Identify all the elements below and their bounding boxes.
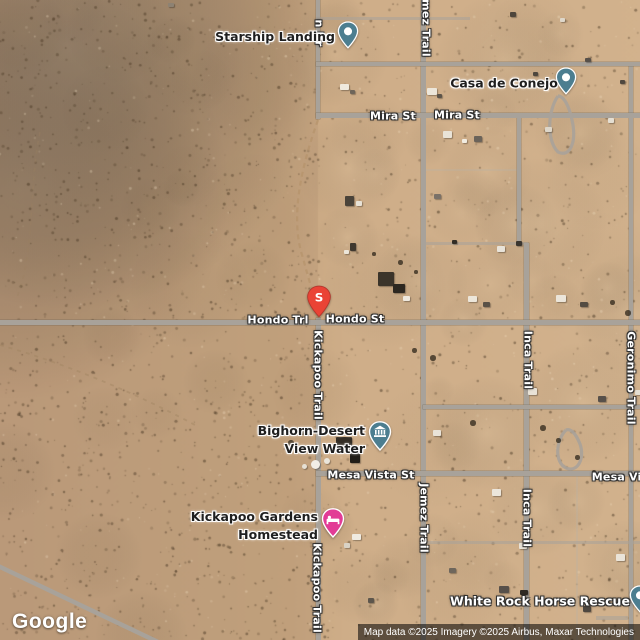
tree bbox=[625, 310, 631, 316]
building bbox=[585, 58, 591, 62]
road-label-mira-st-1: Mira St bbox=[370, 110, 416, 123]
road-label-hondo-st: Hondo St bbox=[326, 313, 385, 326]
road-label-kickapoo-trail-1: Kickapoo Trail bbox=[312, 330, 325, 420]
road-label-jemez-trail: Jemez Trail bbox=[418, 483, 431, 553]
tree bbox=[575, 455, 580, 460]
casa-de-conejo-pin[interactable] bbox=[555, 67, 577, 95]
building bbox=[462, 139, 467, 143]
building bbox=[434, 194, 441, 199]
tree bbox=[610, 300, 615, 305]
building bbox=[499, 586, 509, 593]
tree bbox=[470, 420, 476, 426]
marker-letter: S bbox=[315, 290, 324, 304]
building bbox=[433, 430, 441, 436]
building bbox=[344, 543, 350, 548]
building bbox=[468, 296, 477, 302]
selected-place-marker[interactable]: S bbox=[306, 285, 332, 318]
tree bbox=[556, 438, 561, 443]
map-viewport[interactable]: Mira St Mira St Hondo Trl Hondo St Mesa … bbox=[0, 0, 640, 640]
poi-label-line2: View Water bbox=[258, 440, 365, 458]
road-label-mez-trail: mez Trail bbox=[420, 0, 433, 57]
pin-dot-icon bbox=[562, 73, 570, 81]
building bbox=[598, 396, 606, 402]
building bbox=[350, 90, 355, 94]
building bbox=[616, 554, 625, 561]
road-label-hondo-trl: Hondo Trl bbox=[247, 314, 308, 327]
building bbox=[368, 598, 374, 603]
pin-dot-icon bbox=[344, 27, 352, 35]
tree bbox=[540, 425, 546, 431]
building bbox=[560, 18, 565, 22]
building bbox=[302, 464, 307, 469]
poi-label-line1: Bighorn-Desert bbox=[258, 422, 365, 440]
building bbox=[510, 12, 516, 17]
building bbox=[352, 534, 361, 540]
starship-landing-pin[interactable] bbox=[337, 21, 359, 49]
building bbox=[497, 246, 505, 252]
attribution-text: Map data ©2025 Imagery ©2025 Airbus, Max… bbox=[364, 627, 634, 638]
building bbox=[393, 284, 405, 293]
poi-label-bighorn-desert-view-water[interactable]: Bighorn-Desert View Water bbox=[258, 422, 365, 458]
kickapoo-gardens-pin[interactable] bbox=[321, 508, 345, 538]
building bbox=[324, 458, 330, 464]
white-rock-pin[interactable] bbox=[629, 585, 640, 613]
road-label-kickapoo-trail-2: Kickapoo Trail bbox=[311, 543, 324, 633]
building bbox=[545, 127, 552, 132]
building bbox=[378, 272, 394, 286]
dirt-trail bbox=[0, 345, 195, 425]
building bbox=[340, 84, 349, 90]
tree bbox=[372, 252, 376, 256]
building bbox=[452, 240, 457, 244]
building bbox=[350, 243, 356, 251]
driveway-loop bbox=[550, 96, 574, 153]
google-logo[interactable]: Google bbox=[12, 610, 87, 634]
road-label-inca-trail-1: Inca Trail bbox=[522, 331, 535, 389]
dirt-trail bbox=[16, 132, 40, 300]
poi-label-starship-landing[interactable]: Starship Landing bbox=[215, 29, 335, 44]
road-label-geronimo-trail: Geronimo Trail bbox=[625, 331, 638, 424]
building bbox=[345, 196, 354, 206]
building bbox=[492, 489, 501, 496]
building bbox=[427, 88, 437, 95]
building bbox=[403, 296, 410, 301]
poi-label-kickapoo-gardens-homestead[interactable]: Kickapoo Gardens Homestead bbox=[191, 508, 318, 544]
tree bbox=[414, 270, 418, 274]
building bbox=[474, 136, 482, 142]
building bbox=[620, 80, 625, 84]
tree bbox=[412, 348, 417, 353]
attribution-bar[interactable]: Map data ©2025 Imagery ©2025 Airbus, Max… bbox=[358, 624, 640, 640]
road-label-mesa-vis: Mesa Vis bbox=[592, 471, 640, 484]
driveway-loop bbox=[558, 430, 582, 469]
building bbox=[344, 250, 349, 254]
building bbox=[483, 302, 490, 307]
tree bbox=[398, 260, 403, 265]
building bbox=[356, 201, 362, 206]
poi-label-white-rock-horse-rescue[interactable]: White Rock Horse Rescue bbox=[450, 594, 630, 609]
poi-label-line1: Kickapoo Gardens bbox=[191, 508, 318, 526]
building bbox=[168, 3, 174, 7]
road-label-mira-st-2: Mira St bbox=[434, 109, 480, 122]
road-label-mesa-vista-st: Mesa Vista St bbox=[327, 469, 414, 482]
poi-label-casa-de-conejo[interactable]: Casa de Conejo bbox=[450, 76, 558, 91]
pin-body bbox=[323, 509, 344, 537]
bighorn-water-pin[interactable] bbox=[368, 421, 392, 451]
road-label-inca-trail-2: Inca Trail bbox=[521, 489, 534, 547]
building bbox=[437, 94, 442, 98]
building bbox=[556, 295, 566, 302]
tree bbox=[430, 355, 436, 361]
building bbox=[608, 118, 614, 123]
building bbox=[443, 131, 452, 138]
building bbox=[449, 568, 456, 573]
building bbox=[311, 460, 320, 469]
building bbox=[516, 241, 522, 246]
poi-label-line2: Homestead bbox=[191, 526, 318, 544]
building bbox=[580, 302, 588, 307]
